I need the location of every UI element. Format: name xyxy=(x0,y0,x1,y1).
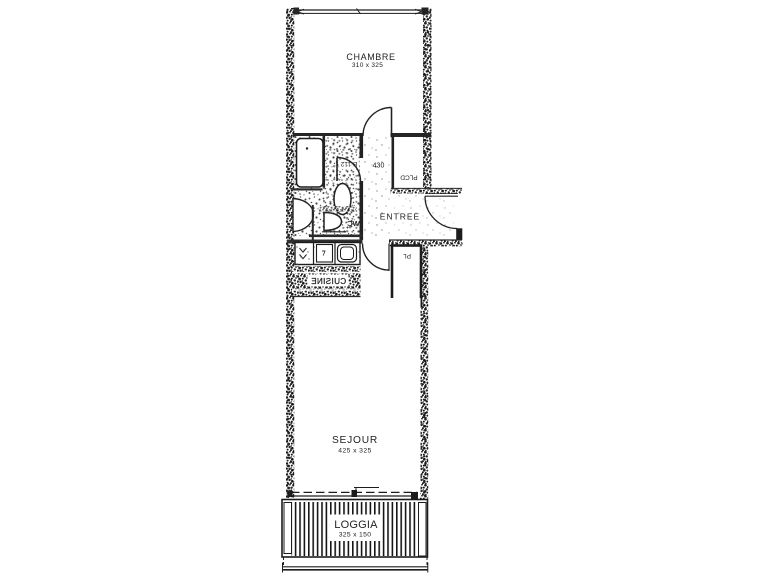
svg-text:430: 430 xyxy=(373,163,385,170)
svg-text:WC: WC xyxy=(347,219,360,228)
svg-text:310 x 325: 310 x 325 xyxy=(352,62,383,69)
svg-text:PLCD: PLCD xyxy=(400,174,418,181)
svg-text:425 x 325: 425 x 325 xyxy=(338,448,371,455)
svg-text:SEJOUR: SEJOUR xyxy=(332,435,378,446)
svg-text:325 x 150: 325 x 150 xyxy=(339,532,372,539)
svg-text:PL: PL xyxy=(403,252,411,259)
svg-text:ENTREE: ENTREE xyxy=(380,212,420,222)
svg-text:CUISINE: CUISINE xyxy=(311,277,346,286)
svg-text:CHAMBRE: CHAMBRE xyxy=(346,52,395,62)
svg-text:LOGGIA: LOGGIA xyxy=(334,519,378,531)
